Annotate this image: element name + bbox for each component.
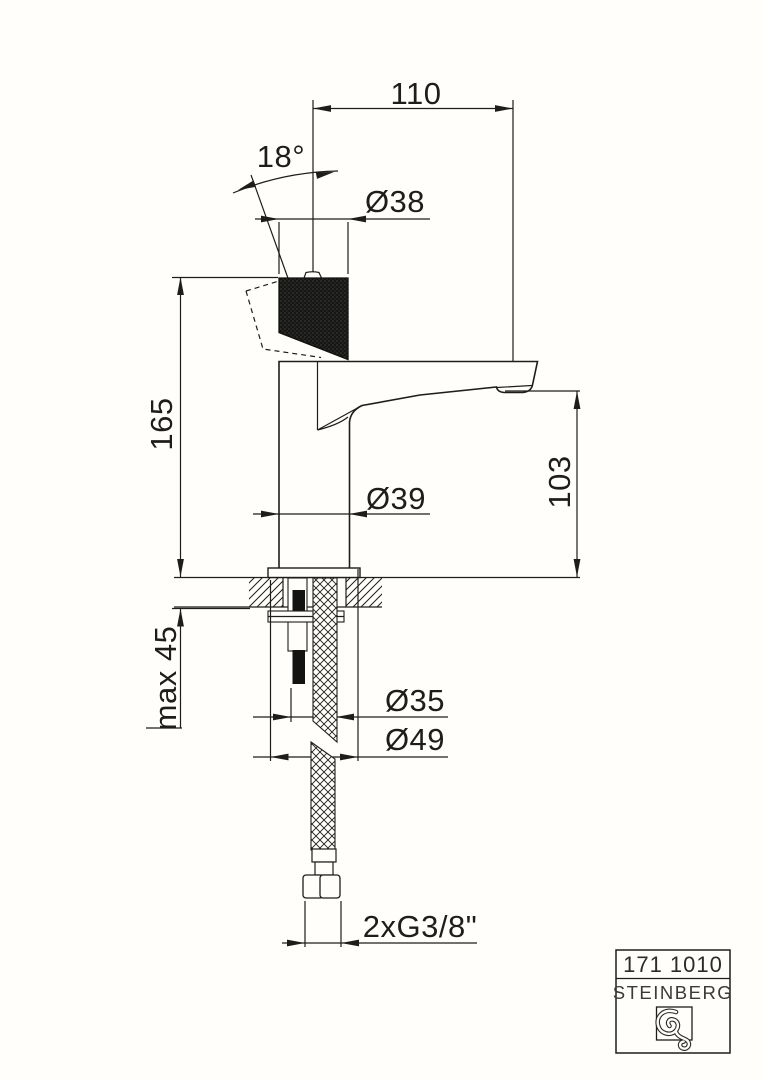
hose-collar (312, 849, 336, 862)
dim-handle-angle-lines (233, 171, 338, 281)
handle-knurl (279, 272, 348, 360)
dim-handle-diameter-lines (255, 216, 430, 274)
dim-handle-diameter-label: Ø38 (365, 184, 425, 219)
title-block: 171 1010 STEINBERG (613, 950, 733, 1053)
faucet-body (279, 362, 538, 569)
supply-hose (303, 578, 340, 898)
countertop-hatch-right (346, 578, 382, 607)
drawing-page: 110 18° Ø38 165 103 Ø39 max 45 Ø35 Ø49 2… (0, 0, 764, 1080)
article-number: 171 1010 (623, 952, 723, 977)
dim-outlet-height-label: 103 (542, 455, 577, 508)
dim-body-diameter-label: Ø39 (366, 481, 426, 516)
dim-total-height-label: 165 (144, 397, 179, 450)
threaded-rod-lower (293, 650, 306, 684)
dim-shank-diameter-label: Ø35 (385, 683, 445, 718)
countertop-hatch-left (249, 578, 283, 607)
hose-nut (303, 875, 340, 898)
dim-spout-reach-label: 110 (391, 76, 442, 111)
hose-tube-end (315, 862, 333, 875)
spout-crease (318, 406, 363, 431)
dim-max-mounting-label: max 45 (148, 626, 183, 731)
dim-connection-label: 2xG3/8" (363, 909, 477, 944)
dim-handle-angle-label: 18° (257, 139, 305, 174)
dim-base-diameter-label: Ø49 (385, 722, 445, 757)
technical-drawing: 110 18° Ø38 165 103 Ø39 max 45 Ø35 Ø49 2… (0, 0, 764, 1080)
dim-total-height-lines (172, 277, 278, 577)
countertop (174, 578, 580, 608)
threaded-rod-upper (293, 590, 306, 611)
brand-name: STEINBERG (613, 982, 733, 1003)
base-flange (268, 568, 360, 578)
